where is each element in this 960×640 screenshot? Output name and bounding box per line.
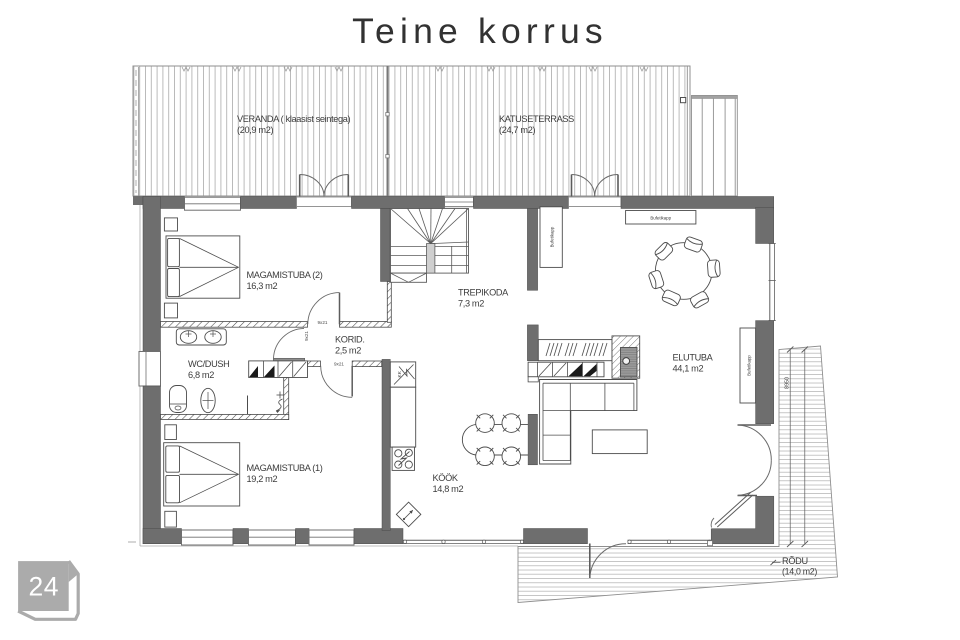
svg-text:MAGAMISTUBA (1): MAGAMISTUBA (1) [247, 463, 323, 473]
svg-text:44,1 m2: 44,1 m2 [673, 364, 704, 374]
svg-text:9x21: 9x21 [334, 361, 344, 366]
svg-text:RÕDU: RÕDU [782, 556, 808, 566]
svg-text:KK: KK [397, 370, 403, 377]
svg-text:VERANDA ( klaasist seintega): VERANDA ( klaasist seintega) [237, 114, 351, 124]
svg-text:8950: 8950 [785, 377, 791, 389]
svg-text:16,3 m2: 16,3 m2 [247, 281, 278, 291]
svg-text:19,2 m2: 19,2 m2 [247, 474, 278, 484]
svg-text:WC/DUSH: WC/DUSH [188, 359, 229, 369]
svg-text:2,5 m2: 2,5 m2 [335, 346, 361, 356]
svg-text:6,8 m2: 6,8 m2 [188, 370, 214, 380]
svg-text:14,8 m2: 14,8 m2 [433, 484, 464, 494]
svg-text:(24,7 m2): (24,7 m2) [499, 125, 535, 135]
svg-text:ELUTUBA: ELUTUBA [673, 353, 714, 363]
svg-text:(20,9 m2): (20,9 m2) [237, 125, 273, 135]
svg-text:MAGAMISTUBA (2): MAGAMISTUBA (2) [247, 270, 323, 280]
svg-text:Bufetikapp: Bufetikapp [550, 226, 555, 247]
svg-text:KORID.: KORID. [335, 335, 365, 345]
svg-text:9x21: 9x21 [304, 331, 309, 341]
svg-text:TREPIKODA: TREPIKODA [458, 288, 509, 298]
svg-text:Bufetikapp: Bufetikapp [746, 355, 751, 376]
svg-text:KÖÖK: KÖÖK [433, 473, 459, 483]
svg-text:Bufetikapp: Bufetikapp [650, 216, 671, 221]
svg-text:KATUSETERRASS: KATUSETERRASS [499, 114, 574, 124]
svg-text:(14,0 m2): (14,0 m2) [782, 567, 817, 577]
svg-text:Teine korrus: Teine korrus [352, 11, 608, 51]
svg-text:9x21: 9x21 [318, 320, 328, 325]
svg-text:7,3 m2: 7,3 m2 [458, 299, 484, 309]
svg-text:24: 24 [29, 572, 59, 602]
